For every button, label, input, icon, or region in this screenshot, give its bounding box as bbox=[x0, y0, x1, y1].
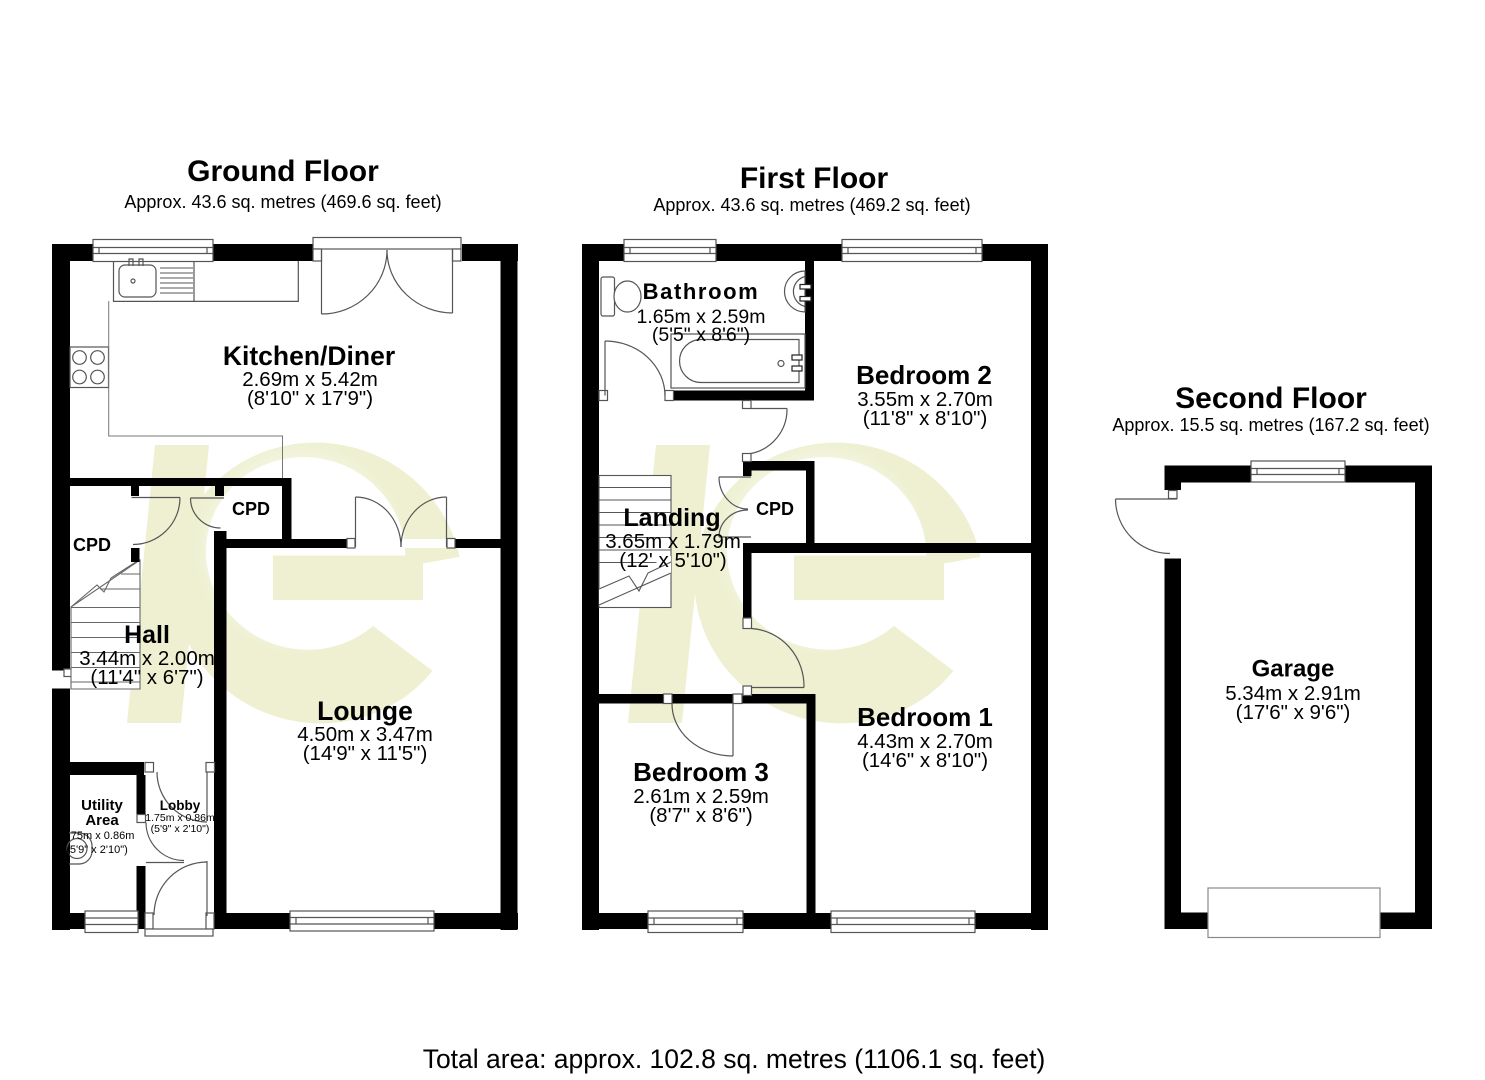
svg-text:Landing: Landing bbox=[623, 504, 720, 532]
svg-text:Approx. 43.6 sq. metres (469.6: Approx. 43.6 sq. metres (469.6 sq. feet) bbox=[124, 192, 441, 212]
svg-text:Approx. 15.5 sq. metres (167.2: Approx. 15.5 sq. metres (167.2 sq. feet) bbox=[1112, 415, 1429, 435]
svg-text:Bathroom: Bathroom bbox=[643, 279, 760, 304]
svg-text:CPD: CPD bbox=[232, 499, 270, 519]
svg-text:Bedroom 3: Bedroom 3 bbox=[633, 757, 769, 787]
svg-text:Lounge: Lounge bbox=[317, 696, 413, 726]
svg-text:1.75m x 0.86m: 1.75m x 0.86m bbox=[62, 830, 135, 842]
svg-text:(14'9" x 11'5"): (14'9" x 11'5") bbox=[303, 742, 428, 765]
svg-text:(8'10" x 17'9"): (8'10" x 17'9") bbox=[247, 387, 373, 410]
svg-text:(14'6" x 8'10"): (14'6" x 8'10") bbox=[862, 749, 988, 772]
svg-text:(5'9" x 2'10"): (5'9" x 2'10") bbox=[66, 844, 128, 856]
svg-text:(11'4" x 6'7"): (11'4" x 6'7") bbox=[90, 666, 203, 689]
svg-text:Total area: approx. 102.8 sq.: Total area: approx. 102.8 sq. metres (11… bbox=[423, 1044, 1046, 1074]
svg-text:Second Floor: Second Floor bbox=[1175, 382, 1367, 415]
svg-text:Approx. 43.6 sq. metres (469.2: Approx. 43.6 sq. metres (469.2 sq. feet) bbox=[653, 195, 970, 215]
svg-text:(12' x 5'10"): (12' x 5'10") bbox=[619, 549, 726, 572]
svg-text:First Floor: First Floor bbox=[740, 162, 889, 195]
svg-text:(17'6" x 9'6"): (17'6" x 9'6") bbox=[1236, 701, 1351, 724]
svg-text:CPD: CPD bbox=[73, 535, 111, 555]
svg-text:Bedroom 2: Bedroom 2 bbox=[856, 360, 992, 390]
svg-text:Lobby: Lobby bbox=[160, 798, 201, 813]
svg-text:Area: Area bbox=[85, 812, 119, 829]
svg-text:Kitchen/Diner: Kitchen/Diner bbox=[223, 341, 395, 371]
svg-text:CPD: CPD bbox=[756, 499, 794, 519]
svg-text:Bedroom 1: Bedroom 1 bbox=[857, 702, 993, 732]
svg-text:Ground Floor: Ground Floor bbox=[187, 155, 379, 188]
svg-text:(5'9" x 2'10"): (5'9" x 2'10") bbox=[151, 823, 210, 835]
svg-text:Hall: Hall bbox=[124, 621, 170, 649]
svg-text:(11'8" x 8'10"): (11'8" x 8'10") bbox=[863, 407, 988, 430]
svg-text:(5'5" x 8'6"): (5'5" x 8'6") bbox=[652, 324, 750, 346]
svg-text:(8'7" x 8'6"): (8'7" x 8'6") bbox=[649, 804, 752, 827]
svg-text:Garage: Garage bbox=[1252, 656, 1335, 683]
